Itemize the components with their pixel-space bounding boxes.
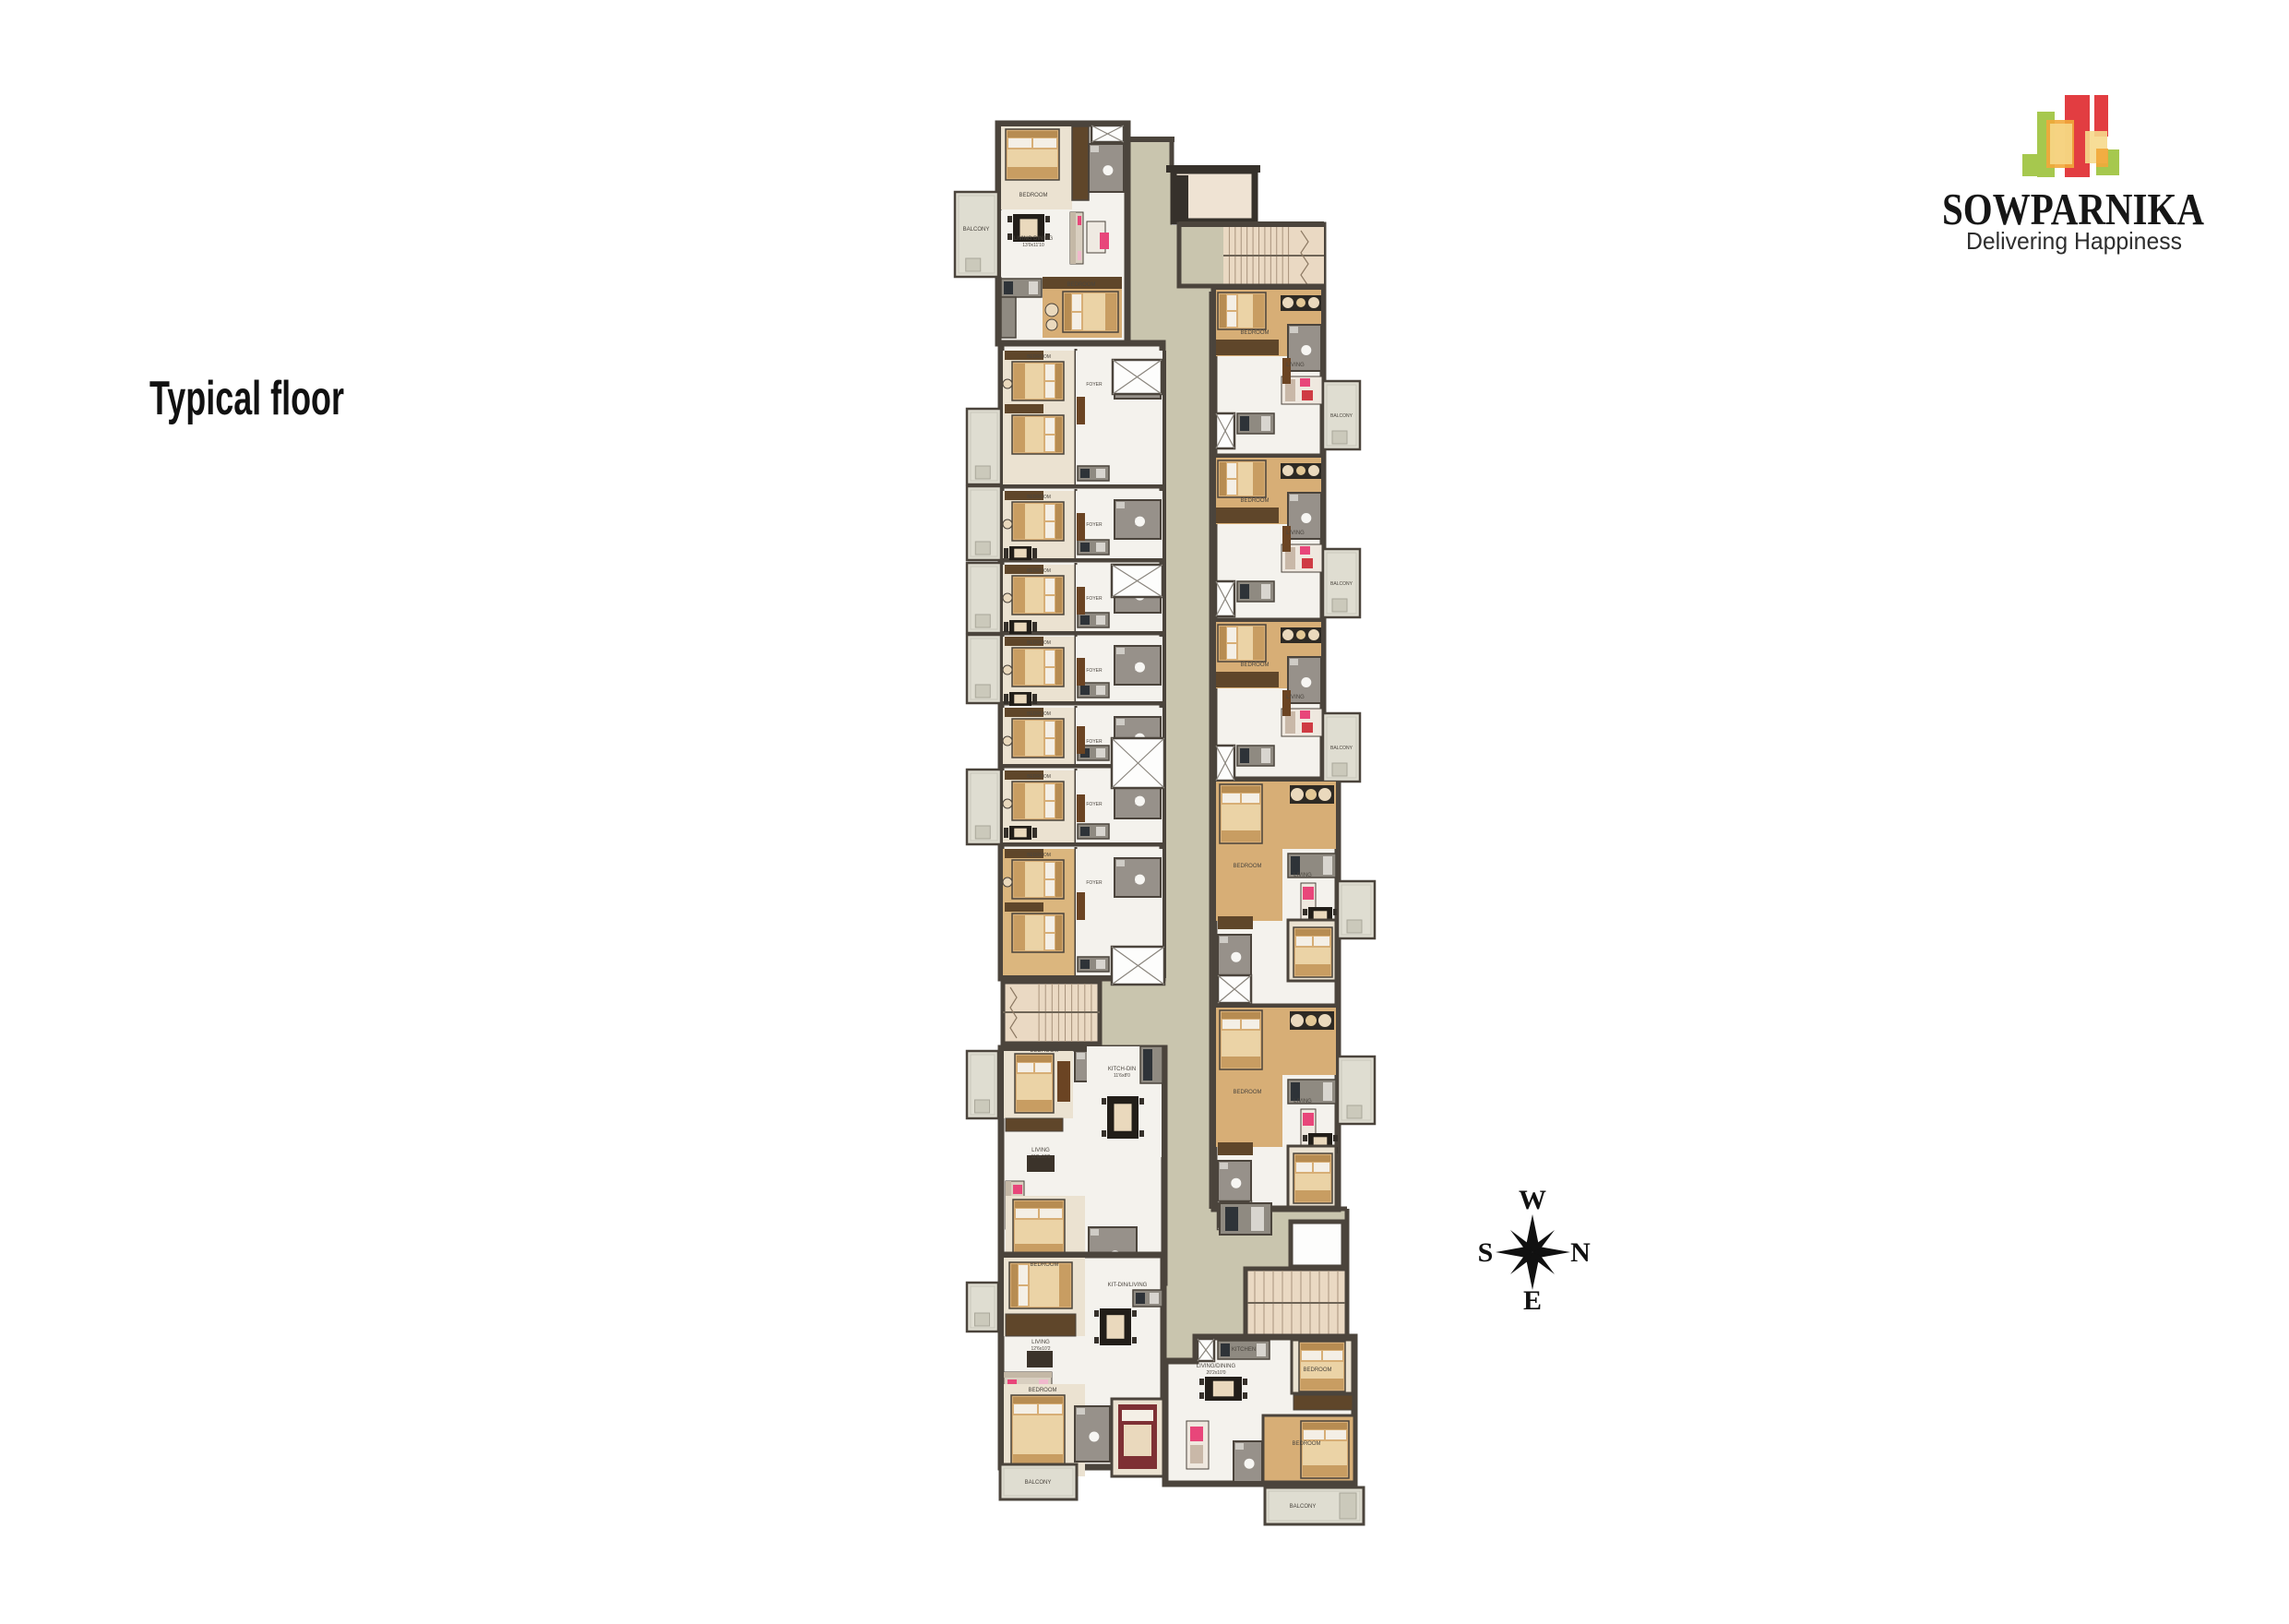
svg-text:BEDROOM: BEDROOM: [1233, 864, 1261, 869]
svg-text:LIVING: LIVING: [1031, 1340, 1050, 1345]
svg-text:FOYER: FOYER: [1086, 739, 1103, 745]
svg-text:BEDROOM: BEDROOM: [1030, 1262, 1058, 1268]
svg-text:FOYER: FOYER: [1086, 668, 1103, 674]
svg-text:E: E: [1523, 1285, 1542, 1316]
svg-text:Delivering Happiness: Delivering Happiness: [1966, 227, 2182, 255]
svg-text:11'6x8'0: 11'6x8'0: [1114, 1073, 1130, 1079]
svg-text:LIVING: LIVING: [1031, 1148, 1050, 1153]
svg-text:BEDROOM: BEDROOM: [1027, 774, 1051, 780]
svg-text:LIVING: LIVING: [1294, 873, 1312, 878]
svg-text:S: S: [1478, 1237, 1494, 1268]
svg-text:BALCONY: BALCONY: [1290, 1504, 1317, 1510]
svg-text:LIVING: LIVING: [1286, 363, 1305, 368]
svg-text:13'0x11'10: 13'0x11'10: [1022, 243, 1044, 248]
svg-text:BEDROOM: BEDROOM: [1233, 1090, 1261, 1095]
svg-text:KITCH-DIN: KITCH-DIN: [1108, 1067, 1136, 1072]
svg-text:FOYER: FOYER: [1086, 802, 1103, 807]
svg-text:N: N: [1570, 1237, 1591, 1268]
svg-text:FOYER: FOYER: [1086, 382, 1103, 388]
svg-text:FOYER: FOYER: [1086, 880, 1103, 886]
svg-text:BALCONY: BALCONY: [1025, 1480, 1052, 1486]
svg-text:BALCONY: BALCONY: [1330, 581, 1353, 587]
svg-text:BEDROOM: BEDROOM: [1027, 711, 1051, 717]
svg-text:KITCHEN: KITCHEN: [1232, 1347, 1256, 1353]
svg-text:BEDROOM: BEDROOM: [1240, 330, 1269, 336]
svg-text:BEDROOM: BEDROOM: [1240, 498, 1269, 504]
svg-text:BEDROOM: BEDROOM: [1028, 1388, 1056, 1393]
svg-text:FOYER: FOYER: [1086, 522, 1103, 528]
svg-text:BEDROOM: BEDROOM: [1292, 1441, 1320, 1447]
svg-text:BEDROOM: BEDROOM: [1067, 282, 1095, 288]
svg-text:BEDROOM: BEDROOM: [1027, 568, 1051, 574]
svg-text:W: W: [1519, 1185, 1546, 1215]
svg-text:BEDROOM: BEDROOM: [1303, 1367, 1331, 1373]
svg-text:BALCONY: BALCONY: [1330, 413, 1353, 419]
svg-text:BEDROOM: BEDROOM: [1027, 495, 1051, 500]
svg-text:BEDROOM: BEDROOM: [1019, 193, 1047, 198]
svg-text:LIVING/DINING: LIVING/DINING: [1197, 1364, 1236, 1369]
svg-text:BEDROOM: BEDROOM: [1240, 663, 1269, 668]
svg-text:LIVING DINING: LIVING DINING: [1014, 236, 1054, 242]
svg-text:BEDROOM: BEDROOM: [1027, 853, 1051, 858]
svg-text:FOYER: FOYER: [1086, 596, 1103, 602]
svg-text:BALCONY: BALCONY: [1330, 746, 1353, 751]
svg-text:BEDROOM: BEDROOM: [1027, 354, 1051, 360]
svg-text:LIVING: LIVING: [1294, 1099, 1312, 1105]
svg-text:11'6x10'0: 11'6x10'0: [1031, 1154, 1051, 1160]
svg-text:Typical floor: Typical floor: [149, 372, 344, 425]
svg-text:BEDROOM: BEDROOM: [1030, 1048, 1058, 1054]
svg-text:LIVING: LIVING: [1286, 695, 1305, 700]
svg-text:20'2x10'0: 20'2x10'0: [1206, 1370, 1225, 1376]
svg-text:12'6x10'2: 12'6x10'2: [1031, 1346, 1050, 1352]
svg-text:BALCONY: BALCONY: [963, 227, 990, 233]
svg-text:LIVING: LIVING: [1286, 531, 1305, 536]
svg-text:KIT-DIN/LIVING: KIT-DIN/LIVING: [1108, 1283, 1148, 1288]
svg-text:BEDROOM: BEDROOM: [1027, 640, 1051, 646]
